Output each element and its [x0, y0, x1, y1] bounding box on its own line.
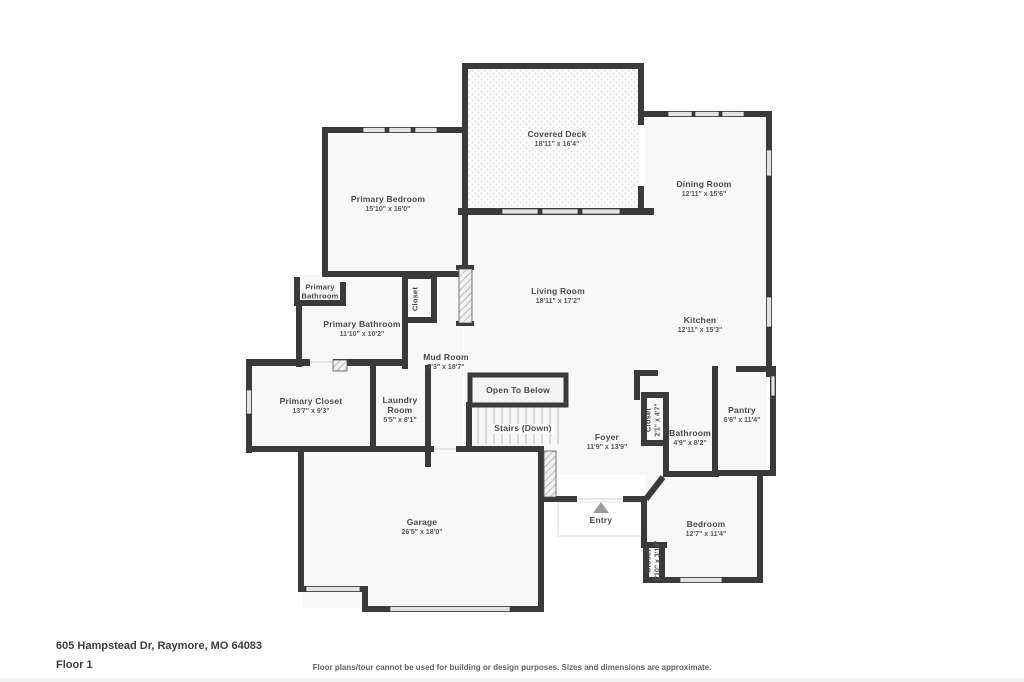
disclaimer-text: Floor plans/tour cannot be used for buil… [313, 663, 712, 672]
open-to-below-box [470, 375, 566, 405]
floor-plan-page: { "footer": { "address": "605 Hampstead … [0, 0, 1024, 682]
covered-deck-area [466, 68, 640, 209]
property-address: 605 Hampstead Dr, Raymore, MO 64083 [56, 640, 262, 652]
floor-indicator: Floor 1 [56, 659, 93, 671]
floor-plan-svg [0, 0, 1024, 682]
chase-hatch [333, 360, 347, 371]
fireplace [459, 269, 472, 323]
entry-arrow-icon [593, 502, 609, 513]
bottom-divider [0, 678, 1024, 682]
stair-side-hatch [544, 451, 556, 497]
